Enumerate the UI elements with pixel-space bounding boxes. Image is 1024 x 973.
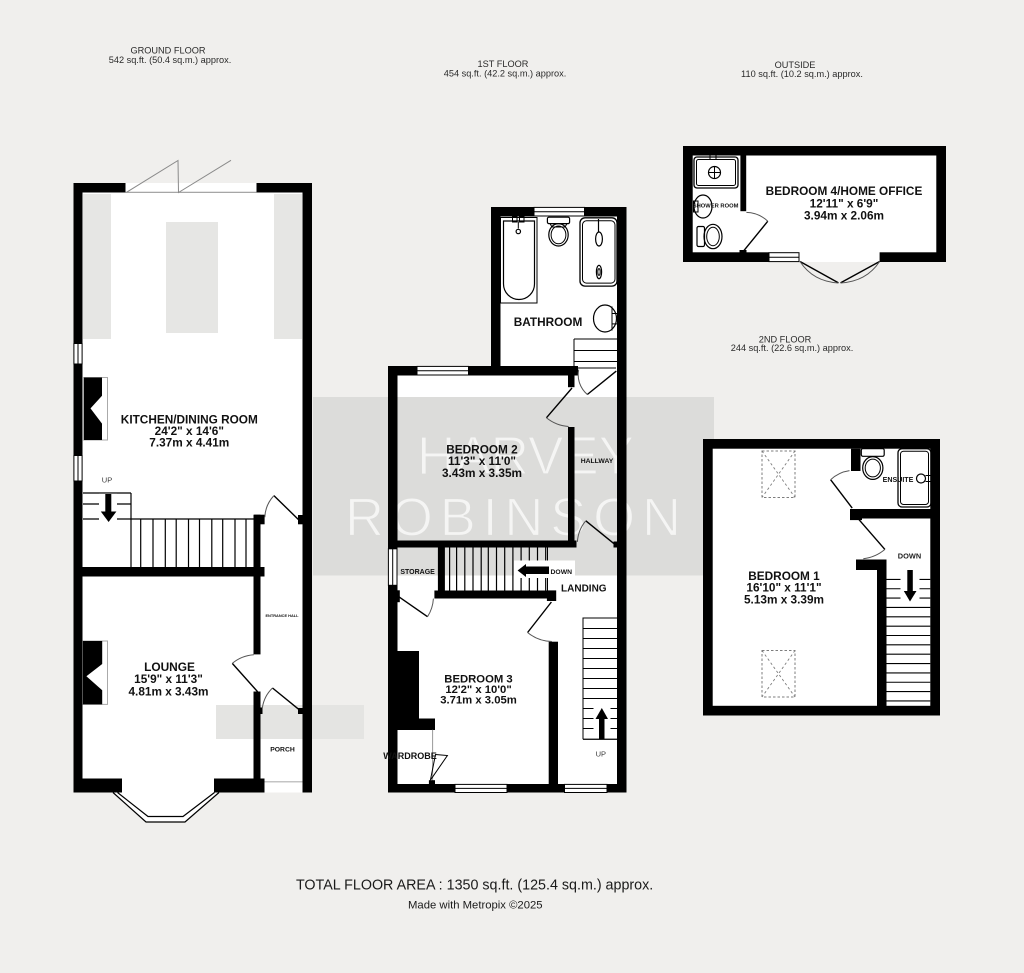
- svg-text:110 sq.ft. (10.2 sq.m.) approx: 110 sq.ft. (10.2 sq.m.) approx.: [741, 69, 863, 79]
- svg-text:TOTAL FLOOR AREA : 1350 sq.ft.: TOTAL FLOOR AREA : 1350 sq.ft. (125.4 sq…: [296, 878, 653, 894]
- svg-text:1ST FLOOR: 1ST FLOOR: [478, 59, 529, 69]
- svg-text:244 sq.ft. (22.6 sq.m.) approx: 244 sq.ft. (22.6 sq.m.) approx.: [731, 343, 854, 353]
- svg-text:ENSUITE: ENSUITE: [883, 476, 914, 484]
- svg-text:SHOWER ROOM: SHOWER ROOM: [693, 203, 739, 209]
- svg-text:PORCH: PORCH: [270, 746, 295, 753]
- svg-text:HALLWAY: HALLWAY: [581, 458, 614, 465]
- svg-text:ENTRANCE HALL: ENTRANCE HALL: [265, 613, 299, 618]
- svg-text:542 sq.ft. (50.4 sq.m.) approx: 542 sq.ft. (50.4 sq.m.) approx.: [109, 55, 232, 65]
- svg-text:STORAGE: STORAGE: [400, 569, 435, 576]
- svg-text:4.81m x 3.43m: 4.81m x 3.43m: [128, 684, 208, 698]
- svg-text:Made with Metropix ©2025: Made with Metropix ©2025: [408, 900, 543, 912]
- svg-text:7.37m x 4.41m: 7.37m x 4.41m: [149, 435, 229, 449]
- svg-text:3.71m x 3.05m: 3.71m x 3.05m: [440, 694, 517, 706]
- svg-text:3.43m x 3.35m: 3.43m x 3.35m: [442, 466, 522, 480]
- svg-text:3.94m x 2.06m: 3.94m x 2.06m: [804, 209, 884, 223]
- svg-text:DOWN: DOWN: [551, 569, 573, 576]
- svg-text:LANDING: LANDING: [561, 584, 607, 595]
- svg-text:DOWN: DOWN: [898, 552, 921, 561]
- svg-text:454 sq.ft. (42.2 sq.m.) approx: 454 sq.ft. (42.2 sq.m.) approx.: [444, 68, 567, 78]
- svg-text:5.13m x 3.39m: 5.13m x 3.39m: [744, 592, 824, 606]
- svg-text:WARDROBE: WARDROBE: [383, 751, 437, 761]
- svg-text:UP: UP: [596, 749, 606, 758]
- svg-text:UP: UP: [102, 475, 112, 484]
- svg-text:BATHROOM: BATHROOM: [514, 315, 583, 329]
